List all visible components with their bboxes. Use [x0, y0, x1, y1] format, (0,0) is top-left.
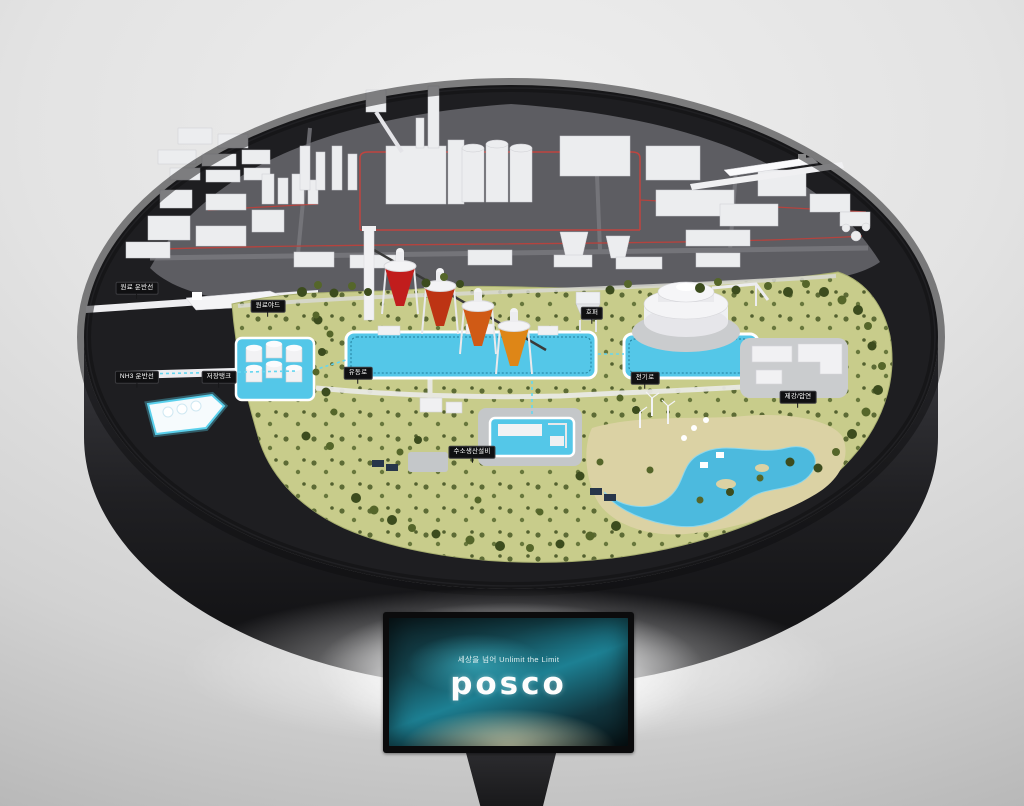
label-plaque-electric-furnace: 전기로: [631, 372, 660, 385]
rolling-mill-buildings: [740, 338, 848, 398]
monitor-tagline: 세상을 넘어 Unlimit the Limit: [389, 654, 628, 665]
posco-logo: posco: [389, 666, 628, 702]
label-plaque-hopper: 호퍼: [581, 307, 603, 320]
storage-tanks: [236, 338, 314, 400]
label-plaque-storage-tank: 저장탱크: [202, 371, 237, 384]
label-plaque-fluidized-furnace: 유동로: [344, 367, 373, 380]
existing-plant-zone: [126, 86, 880, 300]
label-plaque-nh3-carrier: NH3 운반선: [115, 371, 159, 384]
kiosk-monitor: 세상을 넘어 Unlimit the Limit posco: [383, 612, 634, 753]
monitor-screen: 세상을 넘어 Unlimit the Limit posco: [389, 618, 628, 746]
label-plaque-rolling-mill: 제강/압연: [780, 391, 817, 404]
label-plaque-material-yard: 원료야드: [251, 300, 286, 313]
label-plaque-ore-carrier: 원료 운반선: [116, 282, 159, 295]
exhibit-photo: 원료 운반선 NH3 운반선 저장탱크 원료야드 유동로 수소생산설비 호퍼 전…: [0, 0, 1024, 806]
label-plaque-hydrogen-plant: 수소생산설비: [448, 446, 495, 459]
